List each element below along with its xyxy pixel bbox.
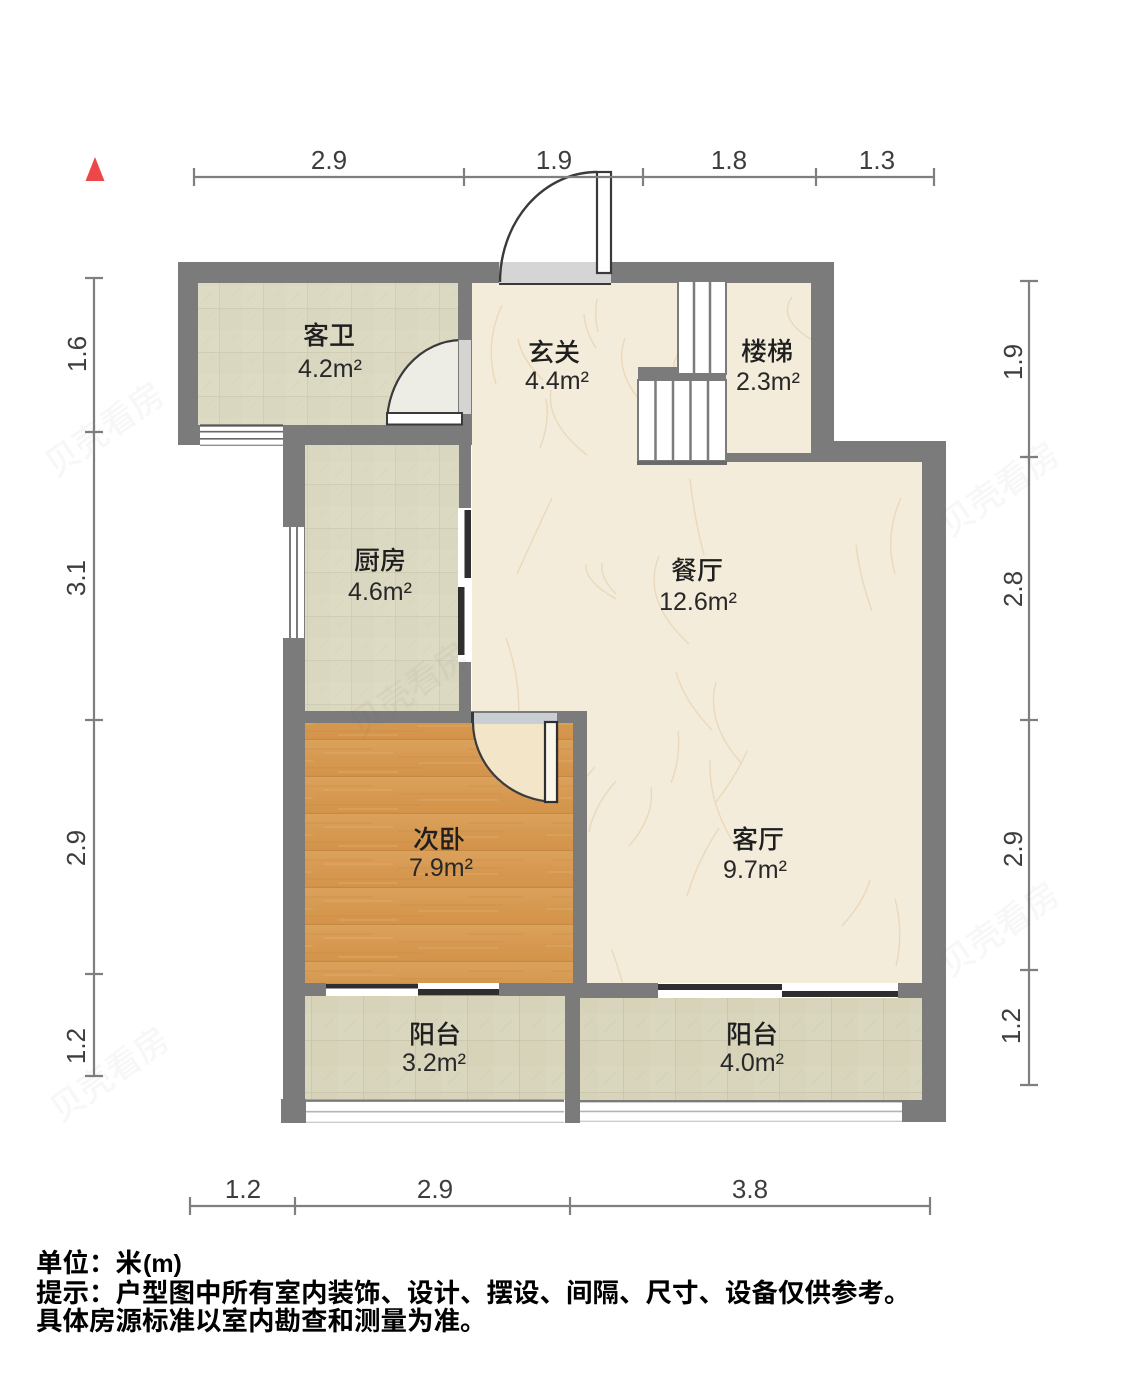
svg-text:1.6: 1.6 bbox=[62, 336, 92, 372]
svg-text:(m): (m) bbox=[143, 1250, 182, 1278]
svg-text:2.8: 2.8 bbox=[998, 571, 1028, 607]
svg-text:9.7m²: 9.7m² bbox=[723, 856, 787, 884]
svg-text:1.9: 1.9 bbox=[998, 344, 1028, 380]
svg-text:3.8: 3.8 bbox=[732, 1174, 768, 1204]
svg-text:4.4m²: 4.4m² bbox=[525, 367, 589, 395]
svg-text:1.2: 1.2 bbox=[61, 1028, 91, 1064]
svg-text:2.9: 2.9 bbox=[311, 145, 347, 175]
svg-text:1.2: 1.2 bbox=[225, 1174, 261, 1204]
svg-text:1.9: 1.9 bbox=[536, 145, 572, 175]
svg-text:4.6m²: 4.6m² bbox=[348, 578, 412, 606]
svg-text:3.1: 3.1 bbox=[61, 560, 91, 596]
svg-text:4.0m²: 4.0m² bbox=[720, 1049, 784, 1077]
svg-text:2.9: 2.9 bbox=[998, 831, 1028, 867]
svg-text:2.3m²: 2.3m² bbox=[736, 368, 800, 396]
svg-text:12.6m²: 12.6m² bbox=[659, 588, 737, 616]
svg-text:3.2m²: 3.2m² bbox=[402, 1049, 466, 1077]
svg-text:4.2m²: 4.2m² bbox=[298, 355, 362, 383]
svg-text:2.9: 2.9 bbox=[61, 830, 91, 866]
svg-text:1.2: 1.2 bbox=[996, 1008, 1026, 1044]
svg-text:1.8: 1.8 bbox=[711, 145, 747, 175]
svg-text:7.9m²: 7.9m² bbox=[409, 854, 473, 882]
svg-text:1.3: 1.3 bbox=[859, 145, 895, 175]
svg-text:2.9: 2.9 bbox=[417, 1174, 453, 1204]
